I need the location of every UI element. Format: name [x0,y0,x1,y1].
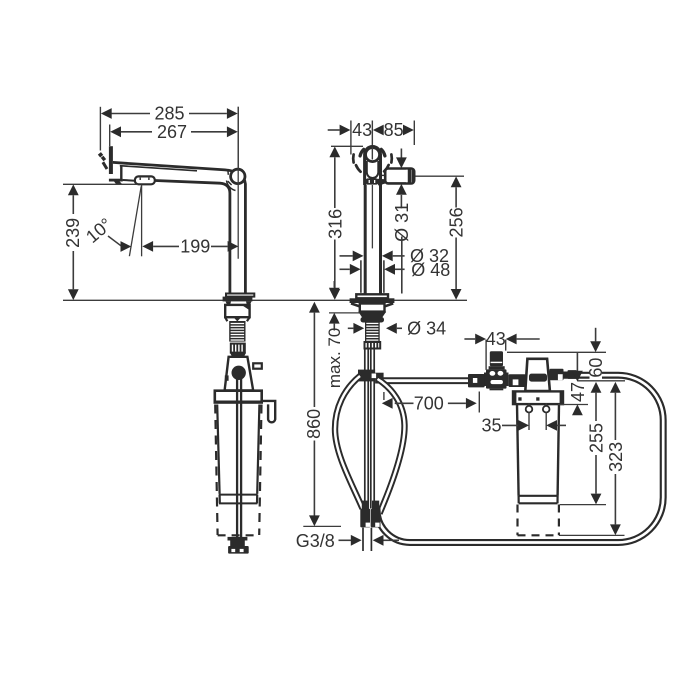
svg-text:Ø 48: Ø 48 [411,260,450,280]
svg-text:700: 700 [414,393,444,413]
svg-text:323: 323 [606,442,626,472]
svg-text:60: 60 [586,358,606,378]
svg-text:G3/8: G3/8 [296,531,335,551]
svg-text:85: 85 [384,120,404,140]
svg-text:316: 316 [325,209,345,239]
svg-text:255: 255 [587,423,607,453]
svg-text:47: 47 [568,382,588,402]
svg-text:max. 70: max. 70 [325,328,344,388]
svg-text:Ø 34: Ø 34 [407,319,446,339]
svg-text:256: 256 [447,207,467,237]
svg-text:199: 199 [180,236,210,256]
svg-text:35: 35 [481,415,501,435]
svg-text:285: 285 [154,104,184,124]
svg-text:860: 860 [304,409,324,439]
svg-text:43: 43 [352,120,372,140]
svg-text:Ø 31: Ø 31 [392,203,412,242]
svg-text:239: 239 [63,218,83,248]
svg-text:267: 267 [157,122,187,142]
svg-text:43: 43 [486,329,506,349]
